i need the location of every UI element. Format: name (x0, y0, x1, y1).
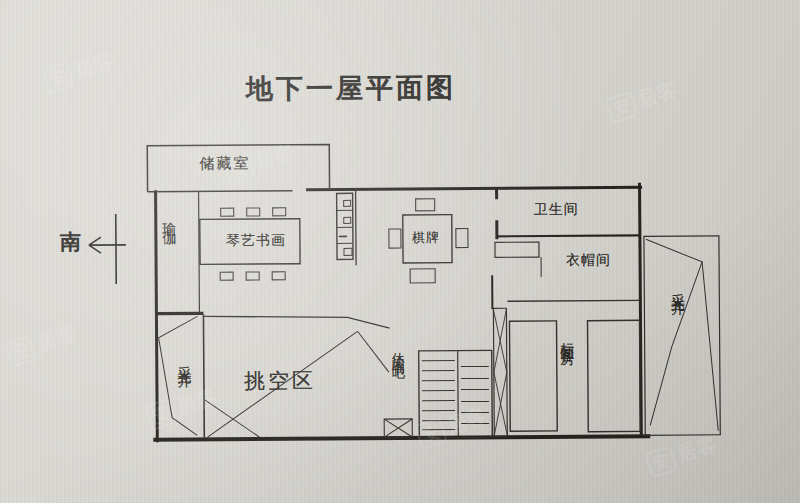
room-label-lightwell-right: 采光井 (669, 282, 687, 294)
floorplan-photo: 地下一屋平面图 储藏室 瑜伽 琴艺书画 棋牌 卫生间 衣帽间 采光井 采光井 挑… (0, 0, 800, 503)
display-shelf (337, 190, 357, 265)
room-label-book-bar: 休闲书吧 (389, 342, 407, 362)
outer-walls (154, 184, 649, 440)
book-bar-box (384, 419, 412, 437)
plan-title: 地下一屋平面图 (246, 70, 456, 107)
stairs (419, 350, 493, 438)
room-label-lightwell-left: 采光井 (176, 354, 194, 366)
lightwell-right-lines (644, 236, 720, 436)
lightwell-left-lines (158, 316, 198, 435)
room-label-cloakroom: 衣帽间 (566, 252, 611, 270)
room-label-bathroom: 卫生间 (534, 201, 579, 219)
room-label-guest-room: 标间客房 (559, 331, 577, 343)
guest-room-beds (507, 300, 640, 432)
room-label-chess: 棋牌 (412, 229, 440, 247)
compass-arrow-icon (89, 214, 126, 284)
cloakroom-cabinet (495, 242, 541, 277)
hatched-column (493, 308, 507, 436)
room-label-yoga: 瑜伽 (161, 211, 179, 229)
room-label-storage: 储藏室 (199, 154, 250, 173)
room-label-piano-art: 琴艺书画 (226, 232, 286, 250)
floorplan-drawing: 地下一屋平面图 储藏室 瑜伽 琴艺书画 棋牌 卫生间 衣帽间 采光井 采光井 挑… (0, 0, 800, 503)
room-label-void-area: 挑空区 (244, 367, 316, 396)
compass-south-label: 南 (60, 228, 81, 256)
